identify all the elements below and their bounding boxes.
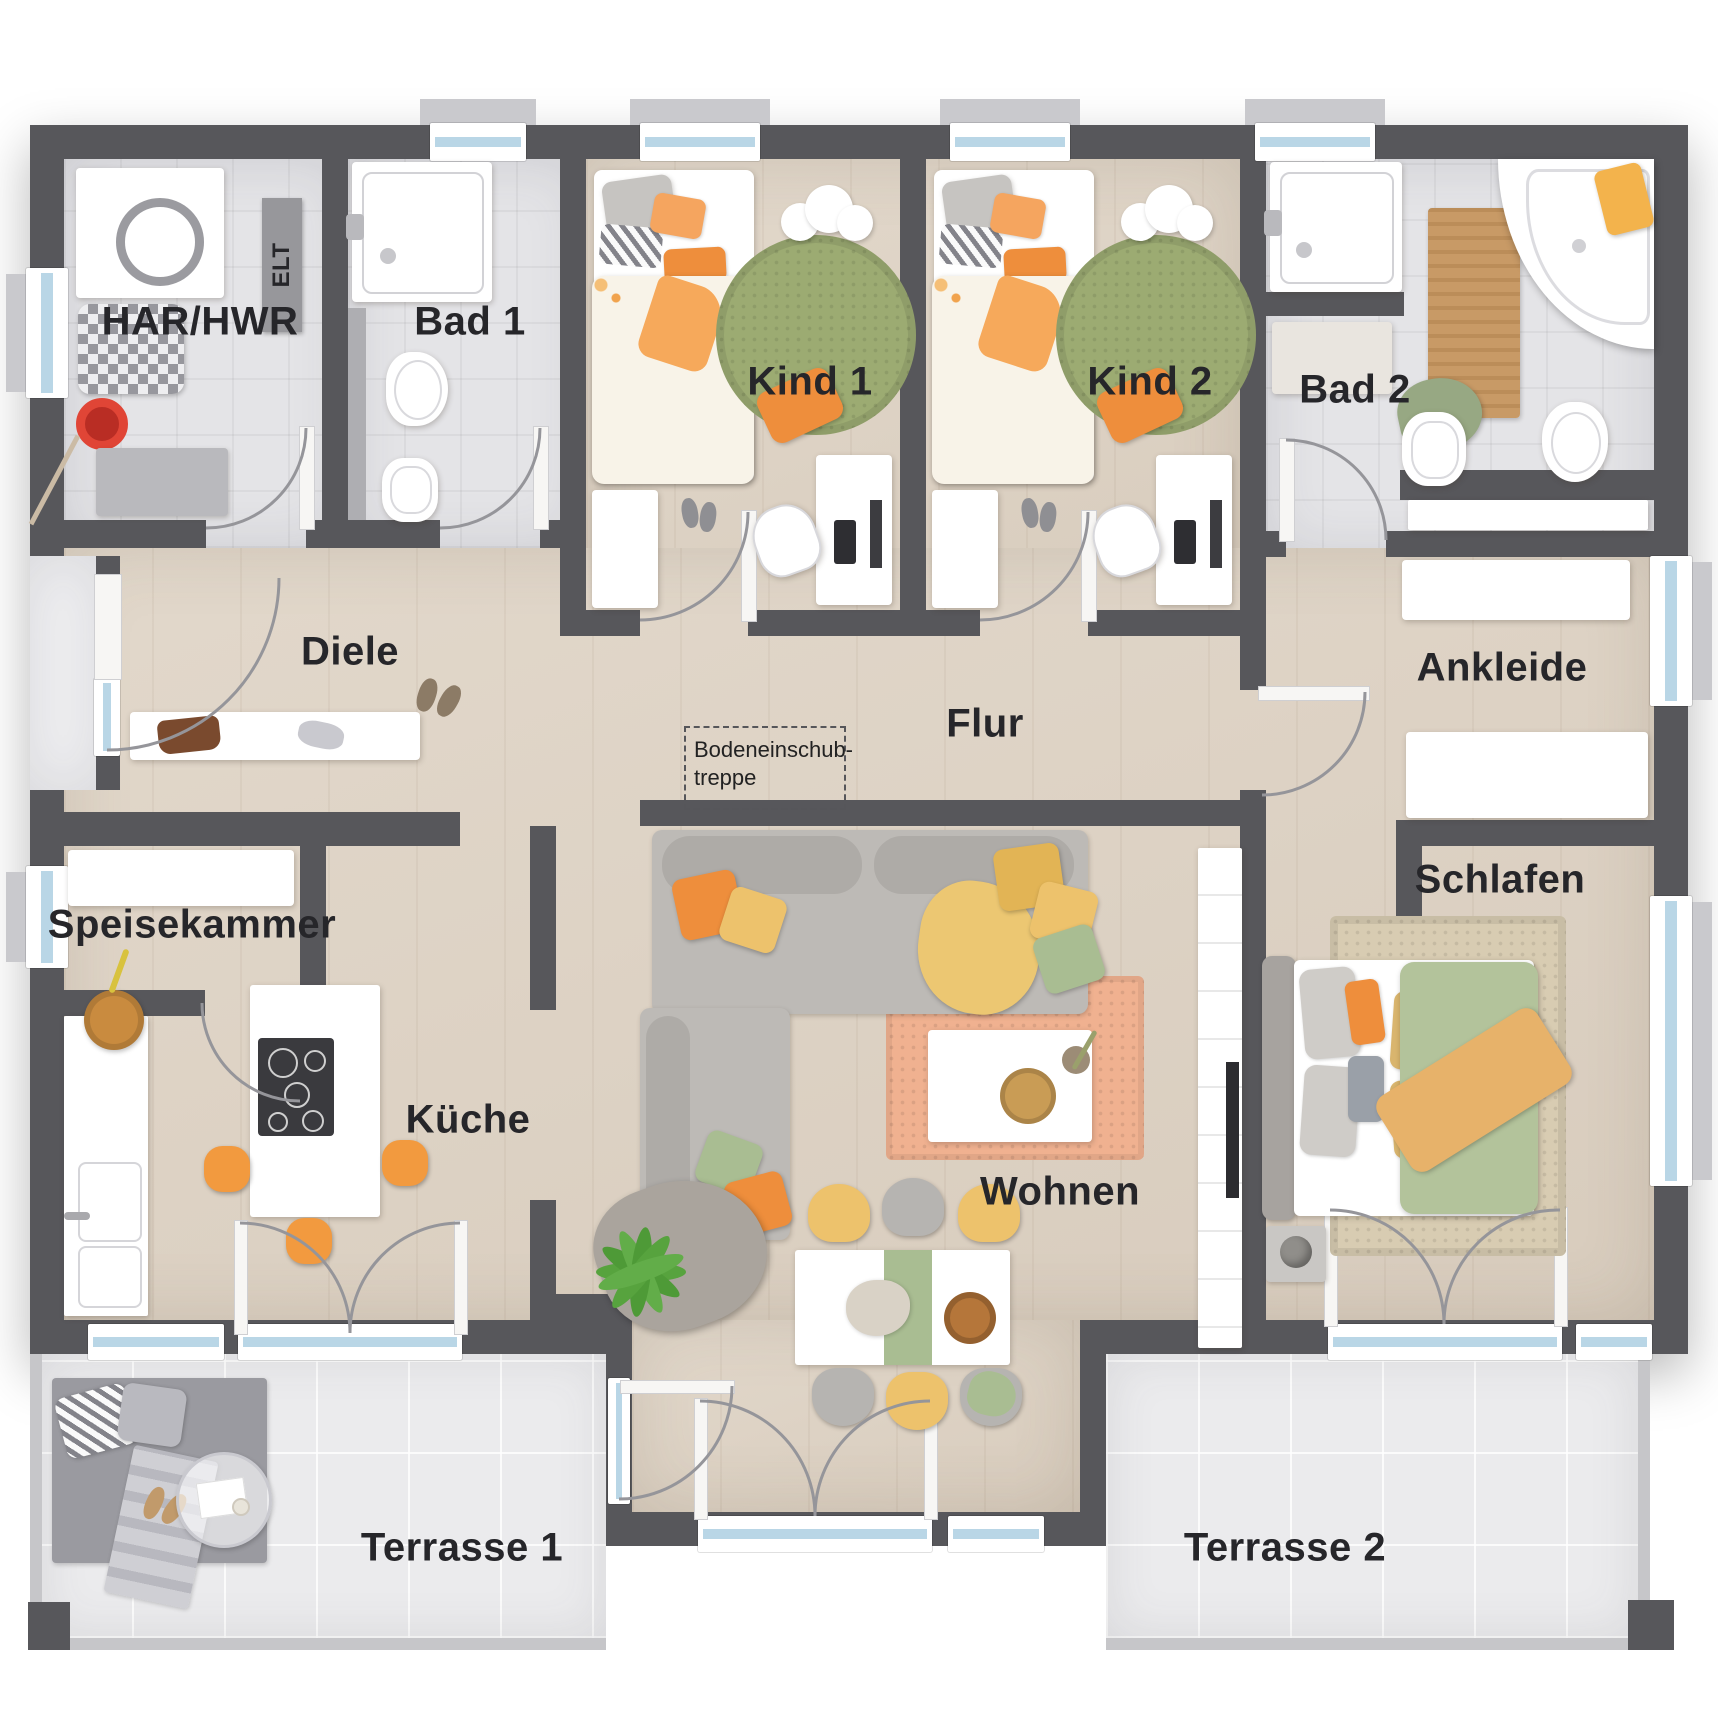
door-arc <box>640 512 748 620</box>
door-arc <box>202 1003 300 1101</box>
room-label-bad2: Bad 2 <box>1299 368 1410 413</box>
door-arc <box>350 1223 460 1333</box>
floor-plan: ELT <box>0 0 1718 1718</box>
room-label-bad1: Bad 1 <box>414 300 525 345</box>
room-label-wohnen: Wohnen <box>980 1170 1140 1215</box>
room-label-kind1: Kind 1 <box>747 360 872 405</box>
door-arc <box>107 578 279 750</box>
door-arc <box>815 1401 930 1516</box>
room-label-speisekammer: Speisekammer <box>48 903 336 948</box>
door-arc <box>240 1223 350 1333</box>
door-arc <box>1330 1210 1444 1324</box>
room-label-terrasse1: Terrasse 1 <box>361 1526 563 1571</box>
door-arc <box>440 428 540 528</box>
attic-stairs-line2: treppe <box>694 765 756 790</box>
attic-stairs-line1: Bodeneinschub- <box>694 737 853 762</box>
room-label-schlafen: Schlafen <box>1415 858 1586 903</box>
room-label-har: HAR/HWR <box>102 300 299 345</box>
room-label-kueche: Küche <box>406 1098 531 1143</box>
door-arc <box>700 1401 815 1516</box>
door-arc <box>206 428 306 528</box>
door-arc <box>1444 1210 1560 1324</box>
room-label-ankleide: Ankleide <box>1417 646 1588 691</box>
elt-label: ELT <box>268 242 296 287</box>
room-label-kind2: Kind 2 <box>1087 360 1212 405</box>
door-arc <box>1262 692 1365 795</box>
door-arc <box>980 512 1088 620</box>
attic-stairs-box: Bodeneinschub- treppe <box>684 726 846 810</box>
door-arc <box>1286 440 1386 540</box>
attic-stairs-text: Bodeneinschub- treppe <box>694 736 853 792</box>
room-label-terrasse2: Terrasse 2 <box>1184 1526 1386 1571</box>
room-label-diele: Diele <box>301 630 399 675</box>
room-label-flur: Flur <box>946 702 1024 747</box>
